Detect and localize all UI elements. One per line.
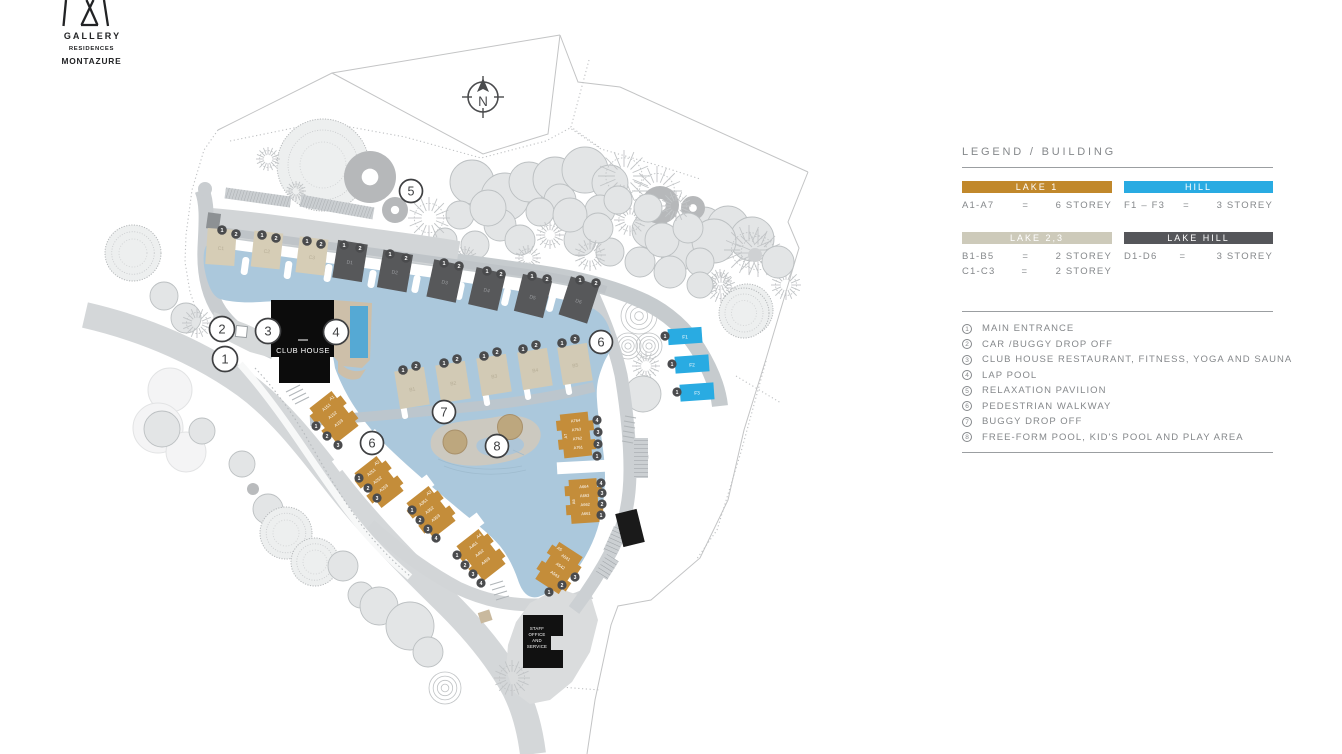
- svg-text:2: 2: [545, 277, 548, 283]
- svg-text:2: 2: [367, 486, 370, 492]
- svg-text:2: 2: [597, 442, 600, 448]
- svg-text:2: 2: [534, 343, 537, 349]
- svg-text:1: 1: [401, 368, 404, 374]
- svg-text:3: 3: [574, 575, 577, 581]
- svg-text:1: 1: [442, 261, 445, 267]
- svg-text:2: 2: [499, 272, 502, 278]
- svg-text:2: 2: [495, 350, 498, 356]
- svg-text:1: 1: [560, 341, 563, 347]
- svg-text:N: N: [478, 94, 488, 109]
- svg-text:B3: B3: [491, 374, 498, 381]
- svg-text:F2: F2: [689, 362, 695, 368]
- svg-text:1: 1: [664, 334, 667, 340]
- svg-text:B5: B5: [572, 363, 579, 370]
- svg-text:3: 3: [472, 572, 475, 578]
- svg-text:A662: A662: [580, 502, 590, 508]
- svg-text:2: 2: [414, 364, 417, 370]
- svg-text:6: 6: [368, 436, 375, 451]
- svg-text:1: 1: [596, 454, 599, 460]
- svg-text:1: 1: [530, 274, 533, 280]
- svg-text:3: 3: [264, 324, 271, 339]
- svg-text:A762: A762: [572, 435, 583, 441]
- svg-text:1: 1: [676, 390, 679, 396]
- svg-text:1: 1: [600, 513, 603, 519]
- svg-text:1: 1: [456, 553, 459, 559]
- svg-text:A661: A661: [581, 511, 591, 517]
- svg-text:AND: AND: [532, 638, 542, 643]
- svg-text:1: 1: [342, 243, 345, 249]
- svg-text:2: 2: [594, 281, 597, 287]
- svg-text:2: 2: [464, 563, 467, 569]
- svg-text:4: 4: [435, 536, 438, 542]
- svg-text:B2: B2: [450, 381, 457, 388]
- svg-text:1: 1: [358, 476, 361, 482]
- svg-text:1: 1: [578, 278, 581, 284]
- svg-text:1: 1: [482, 354, 485, 360]
- svg-text:2: 2: [358, 246, 361, 252]
- svg-text:1: 1: [548, 590, 551, 596]
- svg-text:C1: C1: [217, 246, 224, 252]
- svg-text:B4: B4: [532, 368, 539, 375]
- svg-text:B1: B1: [409, 387, 416, 394]
- svg-text:F1: F1: [682, 334, 688, 340]
- svg-text:2: 2: [218, 322, 225, 337]
- svg-text:2: 2: [326, 434, 329, 440]
- svg-text:6: 6: [597, 335, 604, 350]
- svg-text:CLUB HOUSE: CLUB HOUSE: [276, 346, 330, 355]
- svg-text:D2: D2: [391, 269, 399, 276]
- svg-text:2: 2: [573, 337, 576, 343]
- svg-text:2: 2: [457, 264, 460, 270]
- svg-text:5: 5: [408, 185, 415, 199]
- svg-text:A761: A761: [573, 444, 584, 450]
- svg-text:3: 3: [427, 527, 430, 533]
- svg-text:D1: D1: [346, 260, 353, 267]
- svg-text:A763: A763: [572, 426, 583, 432]
- svg-text:1: 1: [305, 239, 308, 245]
- svg-text:7: 7: [440, 405, 447, 420]
- svg-text:2: 2: [274, 236, 277, 242]
- svg-text:4: 4: [332, 325, 339, 340]
- svg-text:STAFF: STAFF: [530, 626, 544, 631]
- svg-text:2: 2: [601, 502, 604, 508]
- svg-text:1: 1: [315, 424, 318, 430]
- svg-text:2: 2: [234, 232, 237, 238]
- svg-text:2: 2: [319, 242, 322, 248]
- svg-text:2: 2: [404, 256, 407, 262]
- svg-text:2: 2: [455, 357, 458, 363]
- svg-text:1: 1: [442, 361, 445, 367]
- svg-text:2: 2: [419, 518, 422, 524]
- svg-text:3: 3: [601, 491, 604, 497]
- svg-text:1: 1: [485, 269, 488, 275]
- svg-text:2: 2: [561, 583, 564, 589]
- svg-text:1: 1: [411, 508, 414, 514]
- svg-text:1: 1: [221, 352, 228, 367]
- svg-text:A764: A764: [571, 417, 582, 423]
- svg-text:4: 4: [480, 581, 483, 587]
- svg-text:1: 1: [521, 347, 524, 353]
- svg-text:F3: F3: [694, 390, 700, 396]
- svg-text:3: 3: [376, 496, 379, 502]
- svg-text:1: 1: [671, 362, 674, 368]
- svg-text:3: 3: [337, 443, 340, 449]
- svg-text:A663: A663: [580, 493, 590, 499]
- svg-text:3: 3: [597, 430, 600, 436]
- svg-text:4: 4: [596, 418, 599, 424]
- svg-text:C3: C3: [308, 255, 315, 262]
- svg-text:1: 1: [220, 228, 223, 234]
- svg-text:1: 1: [388, 252, 391, 258]
- svg-text:1: 1: [260, 233, 263, 239]
- svg-text:SERVICE: SERVICE: [527, 644, 547, 649]
- svg-text:A664: A664: [579, 484, 589, 490]
- svg-text:8: 8: [493, 439, 500, 454]
- svg-text:C2: C2: [263, 249, 270, 256]
- svg-text:OFFICE: OFFICE: [529, 632, 546, 637]
- svg-text:4: 4: [600, 481, 603, 487]
